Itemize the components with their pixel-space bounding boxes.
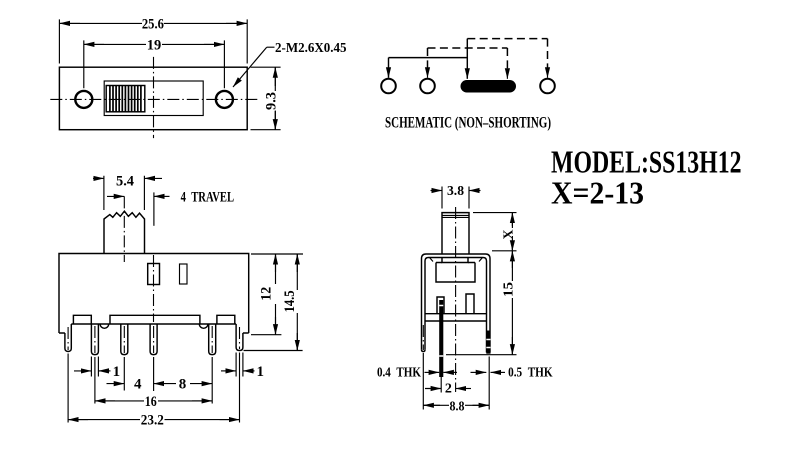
svg-text:X: X: [501, 230, 516, 240]
svg-text:1: 1: [113, 364, 121, 380]
svg-text:25.6: 25.6: [142, 16, 164, 32]
svg-text:16: 16: [145, 394, 157, 410]
svg-text:X=2-13: X=2-13: [551, 176, 644, 211]
svg-text:SCHEMATIC (NON–SHORTING): SCHEMATIC (NON–SHORTING): [385, 115, 551, 132]
svg-text:5.4: 5.4: [116, 174, 134, 190]
svg-text:MODEL:SS13H12: MODEL:SS13H12: [551, 145, 742, 180]
svg-text:19: 19: [147, 37, 162, 53]
svg-text:3.8: 3.8: [447, 184, 464, 199]
svg-text:8: 8: [179, 377, 187, 393]
svg-text:4: 4: [134, 377, 142, 393]
svg-text:12: 12: [258, 287, 274, 301]
svg-text:0.5 THK: 0.5 THK: [508, 365, 553, 380]
svg-text:14.5: 14.5: [282, 290, 298, 312]
svg-text:15: 15: [501, 282, 516, 297]
svg-text:9.3: 9.3: [264, 92, 280, 110]
svg-text:8.8: 8.8: [450, 399, 465, 414]
svg-text:1: 1: [256, 364, 264, 380]
svg-text:23.2: 23.2: [141, 413, 164, 429]
svg-text:0.4 THK: 0.4 THK: [377, 365, 421, 380]
svg-text:2: 2: [445, 381, 452, 396]
svg-text:4 TRAVEL: 4 TRAVEL: [181, 189, 235, 205]
svg-text:2-M2.6X0.45: 2-M2.6X0.45: [275, 40, 347, 55]
